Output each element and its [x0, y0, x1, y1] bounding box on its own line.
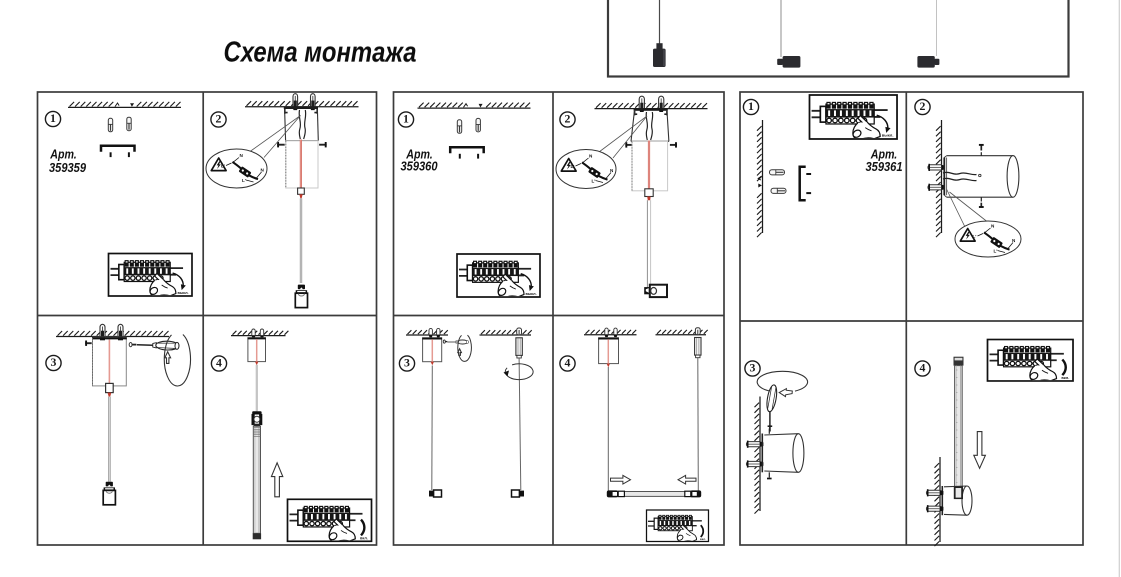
svg-text:вкл.: вкл.	[700, 537, 706, 541]
svg-text:359360: 359360	[400, 158, 438, 173]
svg-text:вкл.: вкл.	[1061, 375, 1069, 380]
svg-text:выкл.: выкл.	[526, 291, 537, 296]
svg-text:2: 2	[920, 99, 926, 113]
svg-text:4: 4	[565, 356, 571, 370]
svg-text:3: 3	[51, 355, 57, 369]
svg-text:4: 4	[920, 361, 926, 375]
svg-text:2: 2	[565, 112, 571, 126]
svg-text:1: 1	[748, 99, 754, 113]
svg-text:4: 4	[216, 356, 222, 370]
svg-text:вкл.: вкл.	[360, 535, 368, 540]
svg-text:359359: 359359	[49, 160, 87, 175]
svg-text:2: 2	[216, 112, 222, 126]
svg-text:3: 3	[404, 356, 410, 370]
svg-text:Схема монтажа: Схема монтажа	[223, 37, 416, 69]
svg-text:3: 3	[750, 361, 756, 375]
svg-text:выкл.: выкл.	[882, 133, 894, 138]
svg-text:выкл.: выкл.	[177, 290, 188, 295]
svg-text:1: 1	[50, 111, 56, 125]
svg-text:1: 1	[403, 112, 409, 126]
svg-text:359361: 359361	[865, 159, 902, 174]
